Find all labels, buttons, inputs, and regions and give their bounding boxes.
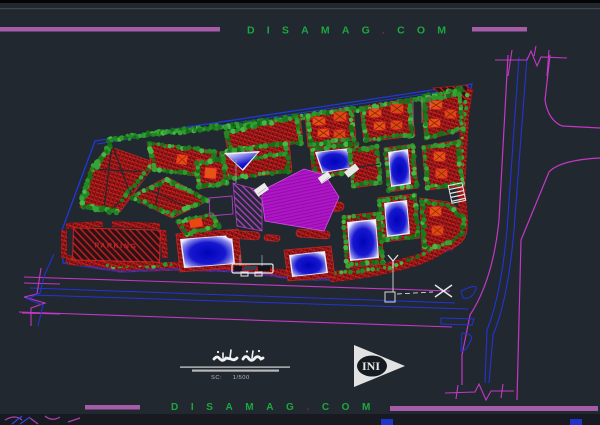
- svg-text:PARKING: PARKING: [94, 242, 137, 250]
- svg-text:DISAMAG.COM: DISAMAG.COM: [171, 402, 383, 413]
- svg-text:DISAMAG.COM: DISAMAG.COM: [247, 25, 458, 37]
- svg-text:INI: INI: [362, 359, 380, 373]
- svg-text:SC: 1/500: SC: 1/500: [211, 375, 250, 381]
